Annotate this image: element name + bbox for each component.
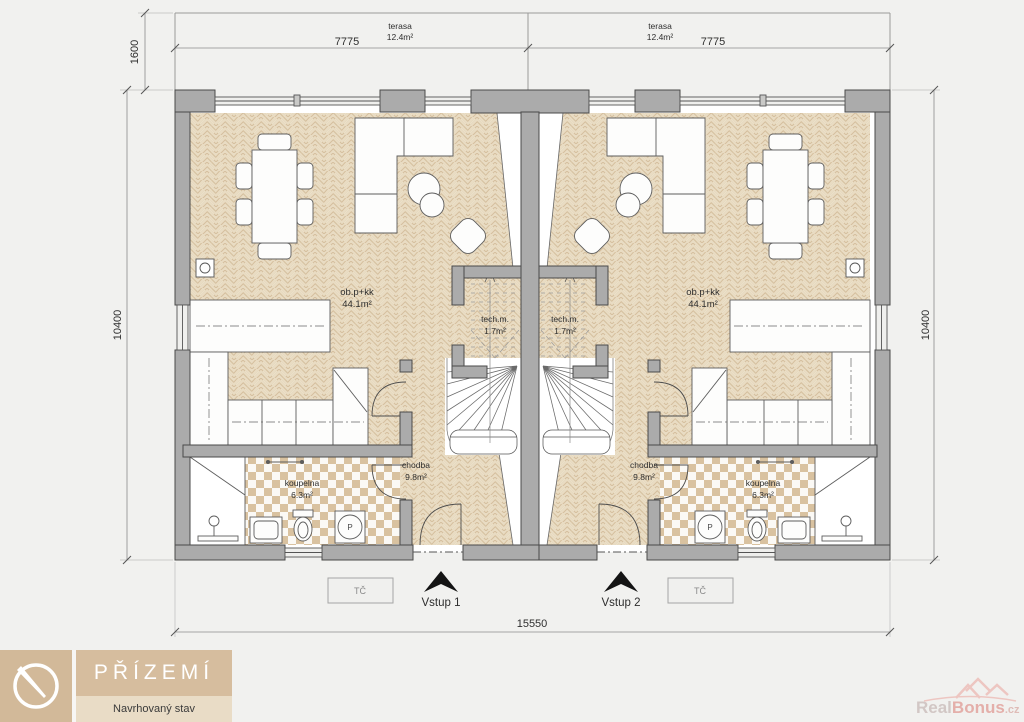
dim-15550: 15550 [517,618,548,630]
right-hall-label: chodba [630,460,658,470]
compass-icon [0,650,72,722]
title-block: PŘÍZEMÍ Navrhovaný stav [0,650,232,722]
floor-plan-page: 7775 7775 terasa 12.4m² terasa 12.4m² 16… [0,0,1024,722]
right-heat-pump-label: TČ [694,586,706,596]
right-shower [815,457,870,545]
watermark-cz: .cz [1005,704,1020,716]
left-tech-label: tech.m. [481,314,509,324]
right-living-label: ob.p+kk [686,287,720,298]
realbonus-text: RealBonus.cz [916,698,1024,718]
left-bath-area: 6.3m² [291,490,313,500]
floor-plan-canvas: 7775 7775 terasa 12.4m² terasa 12.4m² 16… [0,0,1024,722]
dim-10400-right: 10400 [920,310,932,341]
watermark-bonus: Bonus [952,698,1005,717]
left-living-area: 44.1m² [342,299,372,310]
left-heat-pump-label: TČ [354,586,366,596]
left-bath-label: koupelna [285,478,320,488]
right-washer-label: P [707,523,712,532]
dim-7775-left: 7775 [335,36,359,48]
left-hall-area: 9.8m² [405,472,427,482]
floor-status: Navrhovaný stav [76,696,232,722]
right-tech-label: tech.m. [551,314,579,324]
party-wall [521,112,539,545]
right-bath-label: koupelna [746,478,781,488]
dim-7775-right: 7775 [701,36,725,48]
right-hall-area: 9.8m² [633,472,655,482]
left-living-label: ob.p+kk [340,287,374,298]
left-tech-area: 1.7m² [484,326,506,336]
right-tech-area: 1.7m² [554,326,576,336]
dim-1600: 1600 [129,40,141,64]
entrance2-label: Vstup 2 [602,597,641,609]
left-hall-label: chodba [402,460,430,470]
left-washer-label: P [347,523,352,532]
watermark-real: Real [916,698,952,717]
right-living-area: 44.1m² [688,299,718,310]
terrace-area-right: 12.4m² [647,32,674,42]
floor-title: PŘÍZEMÍ [76,650,232,696]
terrace-area-left: 12.4m² [387,32,414,42]
realbonus-watermark: RealBonus.cz [916,676,1024,722]
terrace-label-left: terasa [388,21,412,31]
entrance1-label: Vstup 1 [422,597,461,609]
terrace-label-right: terasa [648,21,672,31]
dim-10400-left: 10400 [112,310,124,341]
right-bath-area: 6.3m² [752,490,774,500]
left-shower [190,457,245,545]
